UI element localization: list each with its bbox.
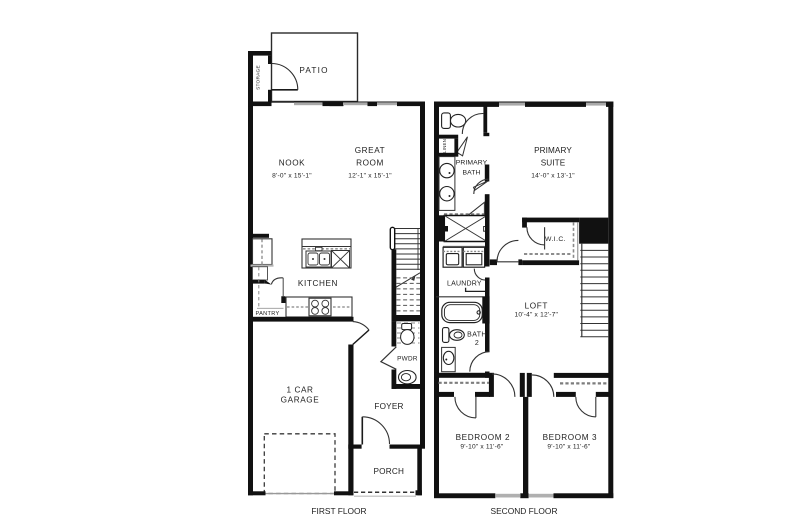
svg-text:LAUNDRY: LAUNDRY: [447, 280, 482, 287]
svg-text:PORCH: PORCH: [374, 467, 405, 476]
svg-text:10'-4" x 12'-7": 10'-4" x 12'-7": [515, 311, 559, 318]
svg-text:W.I.C.: W.I.C.: [545, 236, 566, 243]
svg-text:9'-10" x 11'-6": 9'-10" x 11'-6": [460, 444, 504, 451]
svg-text:2: 2: [475, 340, 479, 347]
svg-text:STORAGE: STORAGE: [256, 65, 262, 90]
svg-text:8'-0" x 15'-1": 8'-0" x 15'-1": [272, 173, 312, 180]
svg-text:BATH: BATH: [462, 169, 480, 176]
svg-text:FOYER: FOYER: [374, 402, 403, 411]
svg-text:12'-1" x 15'-1": 12'-1" x 15'-1": [348, 173, 392, 180]
svg-text:PRIMARY: PRIMARY: [534, 146, 572, 155]
svg-text:ROOM: ROOM: [356, 159, 384, 168]
svg-text:SECOND FLOOR: SECOND FLOOR: [490, 506, 557, 516]
svg-text:BEDROOM 2: BEDROOM 2: [456, 433, 511, 442]
svg-text:BATH: BATH: [467, 332, 487, 339]
svg-text:LINEN: LINEN: [442, 139, 447, 153]
svg-text:9'-10" x 11'-6": 9'-10" x 11'-6": [547, 444, 591, 451]
svg-text:PRIMARY: PRIMARY: [456, 160, 488, 167]
svg-text:14'-0" x 13'-1": 14'-0" x 13'-1": [531, 173, 575, 180]
svg-text:PWDR: PWDR: [397, 356, 418, 363]
svg-text:NOOK: NOOK: [279, 159, 306, 168]
svg-text:GARAGE: GARAGE: [281, 395, 320, 404]
svg-text:FIRST FLOOR: FIRST FLOOR: [311, 506, 366, 516]
svg-text:PATIO: PATIO: [299, 66, 328, 75]
svg-text:SUITE: SUITE: [541, 159, 566, 168]
svg-text:LOFT: LOFT: [525, 302, 548, 311]
svg-text:BEDROOM 3: BEDROOM 3: [543, 433, 598, 442]
svg-text:KITCHEN: KITCHEN: [298, 279, 338, 288]
svg-text:GREAT: GREAT: [355, 146, 386, 155]
svg-text:1 CAR: 1 CAR: [286, 386, 313, 395]
svg-text:PANTRY: PANTRY: [256, 311, 280, 317]
